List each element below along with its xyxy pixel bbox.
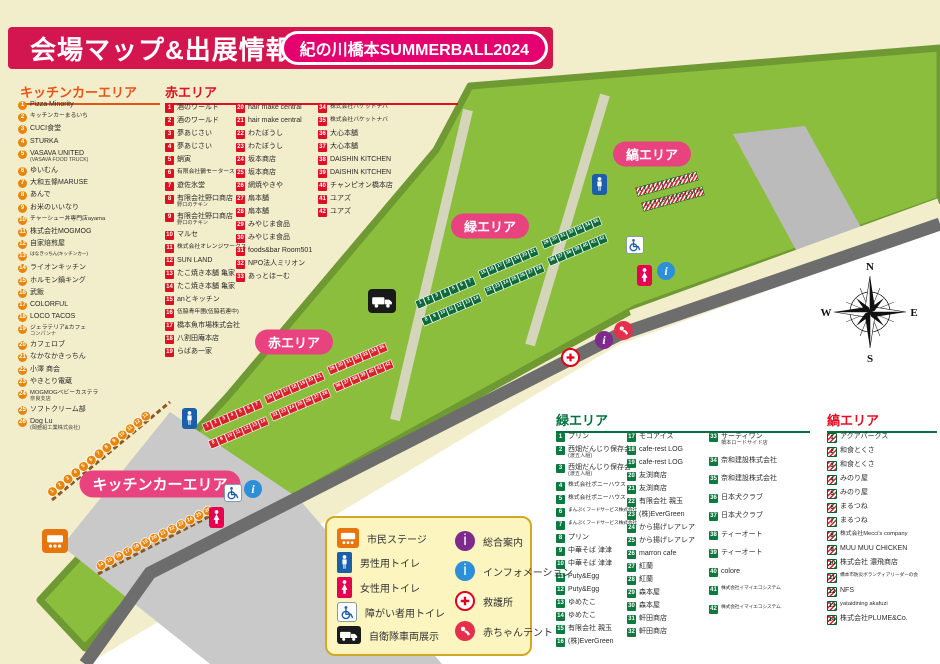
vendor-list-item: 29森本屋 — [627, 589, 695, 598]
vendor-name: 大和五條MARUSE — [30, 179, 88, 187]
vendor-list-item: 10チャーシュー丼専門店ayama — [18, 216, 105, 225]
vendor-number-badge: 25 — [18, 406, 27, 415]
vendor-number-badge: 4 — [165, 143, 174, 152]
vendor-list-item: 19ジェラテリア&カフェコンパンナ — [18, 325, 105, 338]
vendor-name: らばあ一家 — [177, 348, 212, 356]
vendor-name: 扇本舗 — [248, 195, 269, 203]
vendor-name: marron cafe — [639, 550, 676, 558]
vendor-name: チャーシュー丼専門店ayama — [30, 216, 105, 223]
vendor-name: アクアパークス — [840, 433, 888, 441]
vendor-name: たこ焼き本舗 亀家 — [177, 283, 235, 291]
green-area-heading: 緑エリア — [556, 410, 810, 433]
vendor-list-item: 40チャンピオン橋本店 — [318, 182, 393, 191]
male-toilet-icon — [182, 408, 197, 429]
baby-tent-icon — [455, 621, 475, 641]
vendor-list-item: 3和食とくさ — [827, 461, 918, 471]
vendor-number-badge: 25 — [627, 537, 636, 546]
vendor-list-item: 35奈和建設株式会社 — [709, 475, 781, 484]
vendor-name: MOGMOGベビーカステラ奈良支店 — [30, 390, 98, 403]
vendor-number-badge: 13 — [827, 601, 837, 611]
vendor-name: LOCO TACOS — [30, 313, 75, 321]
vendor-name: 有限会社野口商店野口のチキン — [177, 213, 233, 227]
vendor-number-badge: 18 — [627, 446, 636, 455]
vendor-list-item: 20友渕商店 — [627, 472, 695, 481]
vendor-list-item: 30みやじま食品 — [236, 234, 312, 243]
vendor-list-item: 11株式会社MOGMOG — [18, 228, 105, 237]
vendor-number-badge: 21 — [236, 117, 245, 126]
vendor-number-badge: 18 — [165, 335, 174, 344]
vendor-list-item: 22わたぼうし — [236, 130, 312, 139]
vendor-name: SUN LAND — [177, 257, 212, 265]
vendor-name: 橋本魚市場株式会社 — [177, 322, 240, 330]
vendor-list-item: 17COLORFUL — [18, 301, 105, 310]
legend-label: 市民ステージ — [367, 531, 427, 546]
info-blue-icon: i — [455, 561, 475, 581]
vendor-name: たこ焼き本舗 亀家 — [177, 270, 235, 278]
vendor-list-item: 3夢あじさい — [165, 130, 246, 139]
vendor-name: cafe-rest LOG — [639, 446, 683, 454]
vendor-name: 扇本舗 — [248, 208, 269, 216]
vendor-name-sub: 橋本ロードサイド店 — [721, 441, 768, 447]
vendor-list-item: 14ライオンキッチン — [18, 264, 105, 273]
vendor-number-badge: 14 — [18, 264, 27, 273]
vendor-name: 友渕商店 — [639, 472, 667, 480]
vendor-number-badge: 27 — [236, 195, 245, 204]
stage-icon — [42, 529, 68, 553]
vendor-name: ゆいむん — [30, 167, 58, 175]
vendor-number-badge: 2 — [827, 447, 837, 457]
legend-item: 市民ステージ — [337, 528, 445, 548]
vendor-number-badge: 34 — [709, 457, 718, 466]
wheelchair-toilet-icon — [224, 484, 242, 502]
vendor-name-sub: (渡五人組) — [568, 472, 631, 478]
legend-item: i インフォメーション — [455, 561, 573, 581]
vendor-name: (株)EverGreen — [639, 511, 685, 519]
vendor-number-badge: 20 — [18, 341, 27, 350]
vendor-name: 遊佐氷堂 — [177, 182, 205, 190]
vendor-name: 奈和建設株式会社 — [721, 475, 777, 483]
info-blue-icon: i — [657, 262, 675, 280]
legend-label: 自衛隊車両展示 — [369, 628, 439, 643]
red-vendor-list-1: 1酒のワールド2酒のワールド3夢あじさい4夢あじさい5蛸寅6有限会社鶴モータース… — [165, 104, 246, 361]
vendor-name: 小澤 商会 — [30, 366, 60, 374]
vendor-number-badge: 28 — [236, 208, 245, 217]
vendor-list-item: 26Dog Lu(岡亜鉛工業株式会社) — [18, 418, 105, 432]
legend-label: 男性用トイレ — [360, 555, 420, 570]
vendor-name: あんで — [30, 191, 51, 199]
vendor-name: なかなかきっちん — [30, 353, 86, 361]
vendor-number-badge: 10 — [18, 216, 27, 225]
vendor-name: VASAVA UNITED(VASAVA FOOD TRUCK) — [30, 150, 88, 164]
vendor-number-badge: 4 — [827, 475, 837, 485]
vendor-number-badge: 35 — [318, 117, 327, 126]
vendor-list-item: 38DAISHIN KITCHEN — [318, 156, 393, 165]
vendor-name: 酒のワールド — [177, 104, 219, 112]
vendor-name: 株式会社イマイエコシステム — [721, 586, 781, 592]
vendor-list-item: 18cafe-rest LOG — [627, 446, 695, 455]
vendor-number-badge: 22 — [18, 366, 27, 375]
vendor-number-badge: 12 — [165, 257, 174, 266]
vendor-number-badge: 11 — [18, 228, 27, 237]
vendor-list-item: 25ソフトクリーム部 — [18, 406, 105, 415]
vendor-list-item: 6まるつね — [827, 503, 918, 513]
stage-icon — [337, 528, 359, 548]
vendor-list-item: 23(株)EverGreen — [627, 511, 695, 520]
vendor-name: 株式会社ポニーハウス — [568, 482, 626, 489]
vendor-list-item: 39ティーオート — [709, 549, 781, 558]
vendor-name: ユアズ — [330, 195, 351, 203]
vendor-name: 夢あじさい — [177, 143, 212, 151]
wheelchair-toilet-icon — [626, 236, 644, 254]
vendor-number-badge: 3 — [827, 461, 837, 471]
vendor-list-item: 24MOGMOGベビーカステラ奈良支店 — [18, 390, 105, 403]
vendor-list-item: 39DAISHIN KITCHEN — [318, 169, 393, 178]
vendor-number-badge: 22 — [236, 130, 245, 139]
legend-item: 女性用トイレ — [337, 577, 445, 598]
vendor-name: 奈和建設株式会社 — [721, 457, 777, 465]
truck-icon — [337, 626, 361, 644]
vendor-list-item: 15anとキッチン — [165, 296, 246, 305]
vendor-name: 和食とくさ — [840, 447, 875, 455]
vendor-list-item: 41ユアズ — [318, 195, 393, 204]
kitchen-vendor-list: 1Pizza Minority2キッチンカーまるいち3CUCI食堂4STURKA… — [18, 101, 105, 435]
vendor-number-badge: 16 — [165, 309, 174, 318]
wheelchair-toilet-icon — [337, 602, 357, 622]
page-title: 会場マップ&出展情報 — [30, 30, 293, 67]
vendor-number-badge: 12 — [18, 240, 27, 249]
vendor-list-item: 13はなきっちん(キッチンカー) — [18, 252, 105, 261]
vendor-name: プリン — [568, 433, 589, 441]
vendor-number-badge: 5 — [18, 150, 27, 159]
vendor-list-item: 22有限会社 親玉 — [627, 498, 695, 507]
vendor-name: 株式会社ポニーハウス — [568, 495, 626, 502]
male-toilet-icon — [592, 174, 607, 195]
vendor-list-item: 19らばあ一家 — [165, 348, 246, 357]
vendor-list-item: 16武飯 — [18, 289, 105, 298]
vendor-list-item: 19cafe-rest LOG — [627, 459, 695, 468]
green-vendor-list-2: 17モコアイス18cafe-rest LOG19cafe-rest LOG20友… — [627, 433, 695, 641]
vendor-number-badge: 13 — [165, 270, 174, 279]
vendor-name: から揚げレアレア — [639, 537, 695, 545]
red-vendor-list-2: 20hair make central21hair make central22… — [236, 104, 312, 286]
vendor-number-badge: 21 — [18, 353, 27, 362]
vendor-name: 森本屋 — [639, 589, 660, 597]
legend-right-column: i 総合案内 i インフォメーション 救護所 赤ちゃんテント — [455, 526, 573, 646]
vendor-list-item: 18LOCO TACOS — [18, 313, 105, 322]
vendor-name-sub: 野口のチキン — [177, 203, 233, 209]
vendor-number-badge: 29 — [627, 589, 636, 598]
vendor-number-badge: 15 — [165, 296, 174, 305]
vendor-list-item: 10株式会社 濃飛商店 — [827, 559, 918, 569]
vendor-number-badge: 7 — [827, 517, 837, 527]
vendor-number-badge: 17 — [165, 322, 174, 331]
vendor-list-item: 7まるつね — [827, 517, 918, 527]
vendor-number-badge: 9 — [827, 545, 837, 555]
vendor-number-badge: 23 — [627, 511, 636, 520]
vendor-name: 伍脇青年團(伍脇若連中) — [177, 309, 239, 316]
legend-label: 障がい者用トイレ — [365, 605, 445, 620]
vendor-number-badge: 8 — [18, 191, 27, 200]
vendor-number-badge: 42 — [318, 208, 327, 217]
vendor-list-item: 38ティーオート — [709, 531, 781, 540]
vendor-number-badge: 25 — [236, 169, 245, 178]
green-vendor-list-3: 33サーティワン橋本ロードサイド店34奈和建設株式会社35奈和建設株式会社36日… — [709, 433, 781, 623]
vendor-list-item: 4夢あじさい — [165, 143, 246, 152]
vendor-name: ユアズ — [330, 208, 351, 216]
vendor-list-item: 42ユアズ — [318, 208, 393, 217]
vendor-name-sub: (VASAVA FOOD TRUCK) — [30, 158, 88, 164]
legend-item: 障がい者用トイレ — [337, 602, 445, 622]
vendor-name: anとキッチン — [177, 296, 220, 304]
vendor-name: COLORFUL — [30, 301, 68, 309]
vendor-list-item: 36大心本舗 — [318, 130, 393, 139]
vendor-name: 森本屋 — [639, 602, 660, 610]
vendor-number-badge: 21 — [627, 485, 636, 494]
vendor-list-item: 33あっとほーむ — [236, 273, 312, 282]
vendor-number-badge: 1 — [18, 101, 27, 110]
vendor-name: ソフトクリーム部 — [30, 406, 86, 414]
vendor-name: Dog Lu(岡亜鉛工業株式会社) — [30, 418, 80, 432]
vendor-number-badge: 29 — [236, 221, 245, 230]
vendor-list-item: 40colore — [709, 568, 781, 577]
vendor-name: サーティワン橋本ロードサイド店 — [721, 433, 768, 447]
truck-icon — [368, 289, 396, 313]
vendor-name: 網焼やきや — [248, 182, 283, 190]
legend-label: 女性用トイレ — [360, 580, 420, 595]
vendor-number-badge: 27 — [627, 563, 636, 572]
vendor-list-item: 21hair make central — [236, 117, 312, 126]
vendor-list-item: 33サーティワン橋本ロードサイド店 — [709, 433, 781, 447]
vendor-number-badge: 17 — [627, 433, 636, 442]
vendor-list-item: 10マルセ — [165, 231, 246, 240]
vendor-list-item: 5みのり屋 — [827, 489, 918, 499]
vendor-list-item: 34奈和建設株式会社 — [709, 457, 781, 466]
vendor-number-badge: 5 — [827, 489, 837, 499]
vendor-name: 武飯 — [30, 289, 44, 297]
vendor-name: 中華そば 津津 — [568, 547, 612, 555]
vendor-name: MUU MUU CHICKEN — [840, 545, 907, 553]
vendor-number-badge: 1 — [165, 104, 174, 113]
vendor-name: モコアイス — [639, 433, 673, 441]
vendor-name: 夢あじさい — [177, 130, 212, 138]
vendor-list-item: 12自家焙煎屋 — [18, 240, 105, 249]
vendor-name: みのり屋 — [840, 475, 868, 483]
vendor-number-badge: 2 — [165, 117, 174, 126]
vendor-name: 有限会社 親玉 — [639, 498, 683, 506]
vendor-name: チャンピオン橋本店 — [330, 182, 393, 190]
vendor-name: 有限会社 親玉 — [568, 625, 612, 633]
vendor-number-badge: 17 — [18, 301, 27, 310]
vendor-number-badge: 41 — [709, 586, 718, 595]
vendor-number-badge: 6 — [556, 508, 565, 517]
vendor-name: 日本犬クラブ — [721, 512, 763, 520]
vendor-list-item: 28紅蘭 — [627, 576, 695, 585]
vendor-name: 西畑だんじり保存会(渡五人組) — [568, 464, 631, 478]
vendor-name: お米のいいなり — [30, 204, 79, 212]
vendor-list-item: 20カフェロブ — [18, 341, 105, 350]
vendor-name: 株式会社イマイエコシステム — [721, 605, 781, 611]
vendor-number-badge: 15 — [18, 277, 27, 286]
info-blue-icon: i — [244, 480, 262, 498]
vendor-number-badge: 40 — [318, 182, 327, 191]
stripe-area-map-label: 縞エリア — [613, 142, 691, 167]
vendor-name: やきとり電蔵 — [30, 378, 72, 386]
vendor-list-item: 17モコアイス — [627, 433, 695, 442]
vendor-list-item: 25から揚げレアレア — [627, 537, 695, 546]
vendor-list-item: 14たこ焼き本舗 亀家 — [165, 283, 246, 292]
vendor-name: Pizza Minority — [30, 101, 74, 109]
vendor-list-item: 31foods&bar Room501 — [236, 247, 312, 256]
vendor-list-item: 13たこ焼き本舗 亀家 — [165, 270, 246, 279]
vendor-number-badge: 26 — [236, 182, 245, 191]
vendor-list-item: 8有限会社野口商店野口のチキン — [165, 195, 246, 209]
vendor-name: まるつね — [840, 517, 868, 525]
vendor-list-item: 29みやじま食品 — [236, 221, 312, 230]
vendor-number-badge: 23 — [18, 378, 27, 387]
vendor-list-item: 34株式会社バケットナバ — [318, 104, 393, 113]
vendor-name: yataidining akafuzi — [840, 601, 888, 608]
vendor-number-badge: 26 — [18, 418, 27, 427]
vendor-name: 蛸寅 — [177, 156, 191, 164]
vendor-list-item: 4みのり屋 — [827, 475, 918, 485]
vendor-list-item: 11株式会社オレンジワークス — [165, 244, 246, 253]
vendor-number-badge: 16 — [18, 289, 27, 298]
vendor-number-badge: 24 — [236, 156, 245, 165]
vendor-name: まるつね — [840, 503, 868, 511]
vendor-name: Puty&Egg — [568, 586, 599, 594]
vendor-number-badge: 1 — [556, 433, 565, 442]
vendor-name: foods&bar Room501 — [248, 247, 312, 255]
vendor-name: NPO法人ミリオン — [248, 260, 305, 268]
vendor-number-badge: 8 — [165, 195, 174, 204]
vendor-list-item: 28扇本舗 — [236, 208, 312, 217]
vendor-list-item: 7大和五條MARUSE — [18, 179, 105, 188]
baby-tent-icon — [614, 321, 633, 340]
vendor-name: あっとほーむ — [248, 273, 290, 281]
vendor-name: みのり屋 — [840, 489, 868, 497]
vendor-number-badge: 11 — [165, 244, 174, 253]
vendor-number-badge: 19 — [165, 348, 174, 357]
vendor-number-badge: 34 — [318, 104, 327, 113]
vendor-name: NFS — [840, 587, 854, 595]
vendor-number-badge: 20 — [627, 472, 636, 481]
vendor-name: cafe-rest LOG — [639, 459, 683, 467]
vendor-number-badge: 23 — [236, 143, 245, 152]
vendor-number-badge: 41 — [318, 195, 327, 204]
vendor-name: 株式会社バケットナバ — [330, 104, 388, 111]
vendor-list-item: 37大心本舗 — [318, 143, 393, 152]
vendor-name: ティーオート — [721, 549, 763, 557]
vendor-list-item: 27紅蘭 — [627, 563, 695, 572]
vendor-name: 坂本商店 — [248, 156, 276, 164]
vendor-name: DAISHIN KITCHEN — [330, 156, 391, 164]
vendor-number-badge: 3 — [165, 130, 174, 139]
vendor-number-badge: 22 — [627, 498, 636, 507]
vendor-list-item: 26網焼やきや — [236, 182, 312, 191]
vendor-number-badge: 33 — [709, 433, 718, 442]
vendor-number-badge: 26 — [627, 550, 636, 559]
vendor-number-badge: 5 — [556, 495, 565, 504]
vendor-name: 中華そば 津津 — [568, 560, 612, 568]
vendor-name: ホルモン鍋キング — [30, 277, 86, 285]
vendor-list-item: 5蛸寅 — [165, 156, 246, 165]
vendor-number-badge: 12 — [827, 587, 837, 597]
vendor-list-item: 8株式会社Mecci's company — [827, 531, 918, 541]
vendor-list-item: 4STURKA — [18, 138, 105, 147]
vendor-name: colore — [721, 568, 740, 576]
vendor-list-item: 15ホルモン鍋キング — [18, 277, 105, 286]
vendor-name: みやじま食品 — [248, 221, 290, 229]
vendor-list-item: 20hair make central — [236, 104, 312, 113]
vendor-list-item: 3西畑だんじり保存会(渡五人組) — [556, 464, 637, 478]
vendor-list-item: 9お米のいいなり — [18, 204, 105, 213]
title-banner: 会場マップ&出展情報 紀の川橋本SUMMERBALL2024 — [8, 27, 553, 69]
vendor-list-item: 12NFS — [827, 587, 918, 597]
vendor-name: 有限会社鶴モータース — [177, 169, 235, 176]
vendor-number-badge: 33 — [236, 273, 245, 282]
vendor-list-item: 2キッチンカーまるいち — [18, 113, 105, 122]
vendor-name: みやじま食品 — [248, 234, 290, 242]
vendor-number-badge: 30 — [236, 234, 245, 243]
vendor-number-badge: 3 — [18, 125, 27, 134]
vendor-number-badge: 30 — [627, 602, 636, 611]
vendor-name: ジェラテリア&カフェコンパンナ — [30, 325, 86, 338]
vendor-number-badge: 36 — [318, 130, 327, 139]
vendor-list-item: 2和食とくさ — [827, 447, 918, 457]
vendor-list-item: 24坂本商店 — [236, 156, 312, 165]
vendor-number-badge: 18 — [18, 313, 27, 322]
vendor-number-badge: 32 — [236, 260, 245, 269]
red-vendor-list-3: 34株式会社バケットナバ35株式会社バケットナバ36大心本舗37大心本舗38DA… — [318, 104, 393, 221]
legend-item: i 総合案内 — [455, 531, 573, 551]
vendor-number-badge: 11 — [827, 573, 837, 583]
vendor-number-badge: 37 — [318, 143, 327, 152]
vendor-name: DAISHIN KITCHEN — [330, 169, 391, 177]
vendor-name: わたぼうし — [248, 130, 283, 138]
vendor-name: カフェロブ — [30, 341, 65, 349]
vendor-name: 日本犬クラブ — [721, 494, 763, 502]
vendor-number-badge: 13 — [18, 252, 27, 261]
vendor-number-badge: 42 — [709, 605, 718, 614]
vendor-number-badge: 14 — [165, 283, 174, 292]
legend-label: 救護所 — [483, 594, 513, 609]
vendor-list-item: 6有限会社鶴モータース — [165, 169, 246, 178]
vendor-list-item: 25坂本商店 — [236, 169, 312, 178]
vendor-name: から揚げレアレア — [639, 524, 695, 532]
vendor-name: 大心本舗 — [330, 130, 358, 138]
legend-item: 赤ちゃんテント — [455, 621, 573, 641]
vendor-name: 八割田庵本店 — [177, 335, 219, 343]
vendor-number-badge: 4 — [18, 138, 27, 147]
vendor-number-badge: 6 — [165, 169, 174, 178]
vendor-number-badge: 9 — [165, 213, 174, 222]
vendor-name: 自家焙煎屋 — [30, 240, 65, 248]
vendor-list-item: 31軒田商店 — [627, 615, 695, 624]
vendor-number-badge: 5 — [165, 156, 174, 165]
vendor-number-badge: 35 — [709, 475, 718, 484]
vendor-list-item: 21なかなかきっちん — [18, 353, 105, 362]
vendor-number-badge: 10 — [827, 559, 837, 569]
vendor-number-badge: 9 — [18, 204, 27, 213]
vendor-number-badge: 20 — [236, 104, 245, 113]
vendor-number-badge: 2 — [18, 113, 27, 122]
vendor-list-item: 22小澤 商会 — [18, 366, 105, 375]
first-aid-icon — [455, 591, 475, 611]
vendor-list-item: 9有限会社野口商店野口のチキン — [165, 213, 246, 227]
compass-south-label: S — [867, 353, 873, 365]
red-area-map-label: 赤エリア — [255, 330, 333, 355]
vendor-list-item: 2酒のワールド — [165, 117, 246, 126]
